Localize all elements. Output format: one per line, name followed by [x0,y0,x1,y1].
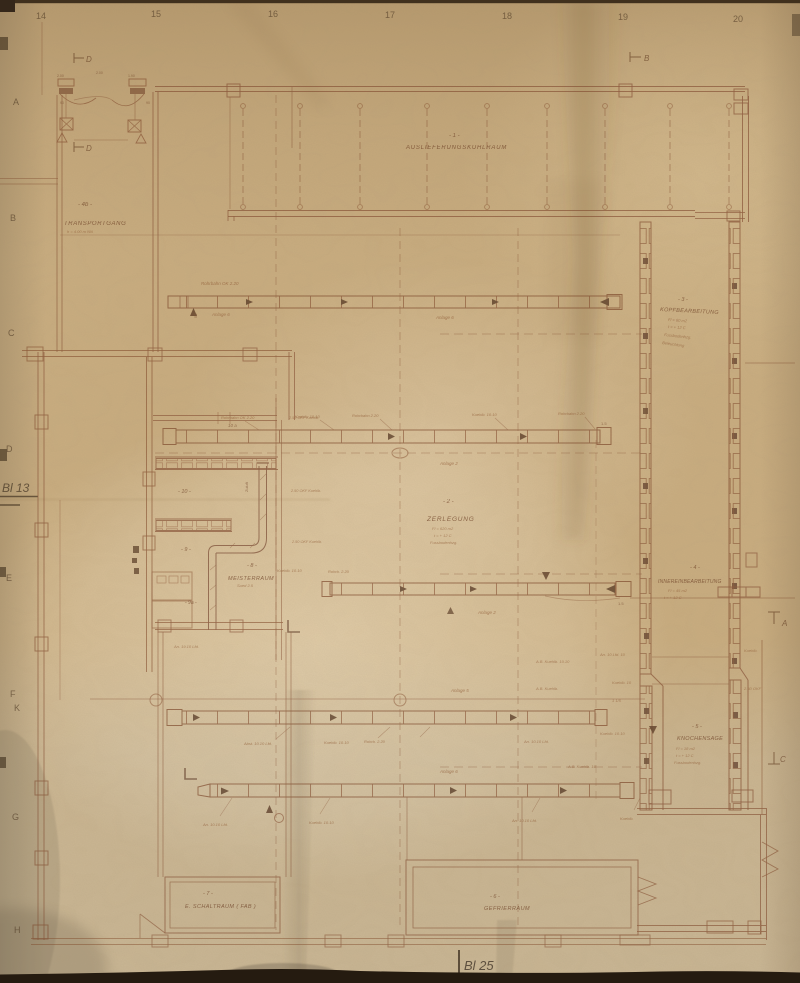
svg-text:H: H [14,925,21,935]
svg-text:1.5: 1.5 [618,601,624,606]
svg-text:A: A [781,619,787,628]
svg-text:C: C [8,328,15,338]
svg-text:90: 90 [146,101,150,105]
svg-text:2.00: 2.00 [96,71,103,75]
svg-text:90: 90 [60,101,64,105]
svg-text:GEFRIERRAUM: GEFRIERRAUM [484,906,530,912]
svg-text:G: G [12,812,19,822]
svg-text:2.00: 2.00 [57,74,64,78]
svg-text:2.50 OKF Kuehlb.: 2.50 OKF Kuehlb. [290,489,321,493]
svg-text:t = + 12 C: t = + 12 C [434,533,452,538]
svg-text:Zuluft: Zuluft [244,481,249,492]
svg-text:TRANSPORTGANG: TRANSPORTGANG [64,221,126,227]
svg-text:Anlage 6: Anlage 6 [211,312,230,317]
svg-text:Rohrb. 2.20: Rohrb. 2.20 [364,739,386,744]
svg-text:Anlage 5: Anlage 5 [450,688,469,693]
svg-text:D: D [6,444,13,454]
svg-text:Fl = 620 m2: Fl = 620 m2 [432,526,454,531]
svg-text:- 8 -: - 8 - [247,563,257,569]
svg-text:2.50 OKF Kuehlb.: 2.50 OKF Kuehlb. [288,416,319,420]
svg-text:A.B. Kuehlb.: A.B. Kuehlb. [535,686,558,691]
svg-text:- 9 -: - 9 - [181,547,191,553]
svg-text:Rohrbahn 2.20: Rohrbahn 2.20 [558,411,585,416]
svg-text:B: B [10,213,16,223]
svg-text:- 5 -: - 5 - [692,724,702,730]
svg-text:Anlage 2: Anlage 2 [477,610,496,615]
svg-text:t = + 12 C: t = + 12 C [664,595,682,600]
svg-text:17: 17 [385,10,395,20]
svg-text:- 10 -: - 10 - [178,489,191,495]
svg-text:18: 18 [502,11,512,21]
svg-text:16: 16 [268,9,278,19]
svg-text:2.50 OKF Kuehlb.: 2.50 OKF Kuehlb. [291,540,322,544]
svg-text:MEISTERRAUM: MEISTERRAUM [228,576,274,582]
svg-text:Anlage 2: Anlage 2 [439,461,458,466]
svg-text:Kuehlb. 10.10: Kuehlb. 10.10 [600,731,625,736]
svg-text:B: B [644,54,650,63]
svg-text:Fussbodenhzg.: Fussbodenhzg. [430,540,457,545]
svg-text:F: F [10,689,16,699]
svg-text:t = + 12 C: t = + 12 C [676,753,694,758]
svg-text:- 4b -: - 4b - [78,202,92,208]
svg-text:Anlage 6: Anlage 6 [435,315,454,320]
svg-text:AUSLIEFERUNGSKUHLRAUM: AUSLIEFERUNGSKUHLRAUM [405,145,507,151]
svg-text:Kuehlb. 10: Kuehlb. 10 [612,680,632,685]
svg-text:C: C [780,755,786,764]
svg-text:- 2 -: - 2 - [443,499,454,505]
svg-text:50: 50 [193,313,198,318]
svg-text:Kuehlb. 10.10: Kuehlb. 10.10 [309,820,334,825]
svg-text:Fl = 45 m2: Fl = 45 m2 [668,588,688,593]
svg-text:Rohrbahn OK 2.20: Rohrbahn OK 2.20 [201,281,239,286]
svg-text:An. 10 Lfd. 10: An. 10 Lfd. 10 [599,652,626,657]
svg-text:Rohrbahn 2.20: Rohrbahn 2.20 [352,413,379,418]
svg-text:1.90: 1.90 [128,74,135,78]
svg-text:Bl 25: Bl 25 [464,958,494,973]
svg-text:Abst. 10.10 Lfd.: Abst. 10.10 Lfd. [243,741,272,746]
svg-text:INNEREINBEARBEITUNG: INNEREINBEARBEITUNG [658,579,722,585]
svg-text:19: 19 [618,12,628,22]
svg-text:An. 10.10 Lfd.: An. 10.10 Lfd. [511,818,537,823]
svg-text:Fussbodenhzg.: Fussbodenhzg. [674,760,701,765]
svg-text:20: 20 [733,14,743,24]
svg-text:K: K [14,703,20,713]
svg-text:- 6 -: - 6 - [490,894,500,900]
svg-text:Kuehlb. 10.10: Kuehlb. 10.10 [324,740,349,745]
svg-text:Kuehlb.: Kuehlb. [744,648,758,653]
svg-text:Kuehlb. 10.10: Kuehlb. 10.10 [277,568,302,573]
svg-text:- 7 -: - 7 - [203,891,213,897]
svg-text:Kuehlb. 10.10: Kuehlb. 10.10 [472,412,497,417]
svg-text:- 3 -: - 3 - [678,297,688,303]
svg-text:h = 4.00 m NN: h = 4.00 m NN [67,229,93,234]
svg-text:A.B. Kuehlb. 10.10: A.B. Kuehlb. 10.10 [535,659,570,664]
svg-text:E. SCHALTRAUM ( FAB ): E. SCHALTRAUM ( FAB ) [185,904,256,910]
svg-text:A.B. Kuehlb. 10: A.B. Kuehlb. 10 [567,764,597,769]
svg-text:An. 19.10 Lfd.: An. 19.10 Lfd. [173,644,199,649]
svg-text:An. 10.10 Lfd.: An. 10.10 Lfd. [202,822,228,827]
svg-text:Kuehlb.: Kuehlb. [620,816,634,821]
svg-text:15: 15 [151,9,161,19]
svg-text:D: D [86,144,92,153]
svg-text:Sued 2.5: Sued 2.5 [237,583,254,588]
svg-text:14: 14 [36,11,46,21]
svg-text:KNOCHENSAGE: KNOCHENSAGE [677,736,723,742]
svg-text:1.5: 1.5 [601,421,607,426]
svg-text:D: D [86,55,92,64]
svg-text:- 4 -: - 4 - [690,565,700,571]
svg-text:A: A [13,97,19,107]
svg-text:Fl = 18 m2: Fl = 18 m2 [676,746,696,751]
svg-text:- 1 -: - 1 - [449,133,460,139]
svg-text:Rohrb. 2.20: Rohrb. 2.20 [328,569,350,574]
svg-text:2.50 OKF: 2.50 OKF [743,686,762,691]
svg-text:E: E [6,573,12,583]
svg-text:An. 10.10 Lfd.: An. 10.10 Lfd. [523,739,549,744]
svg-text:Anlage 6: Anlage 6 [439,769,458,774]
svg-text:Bl 13: Bl 13 [2,481,30,495]
svg-text:10 a: 10 a [228,423,237,428]
svg-text:ZERLEGUNG: ZERLEGUNG [426,516,475,523]
svg-text:1 1/5: 1 1/5 [612,698,622,703]
